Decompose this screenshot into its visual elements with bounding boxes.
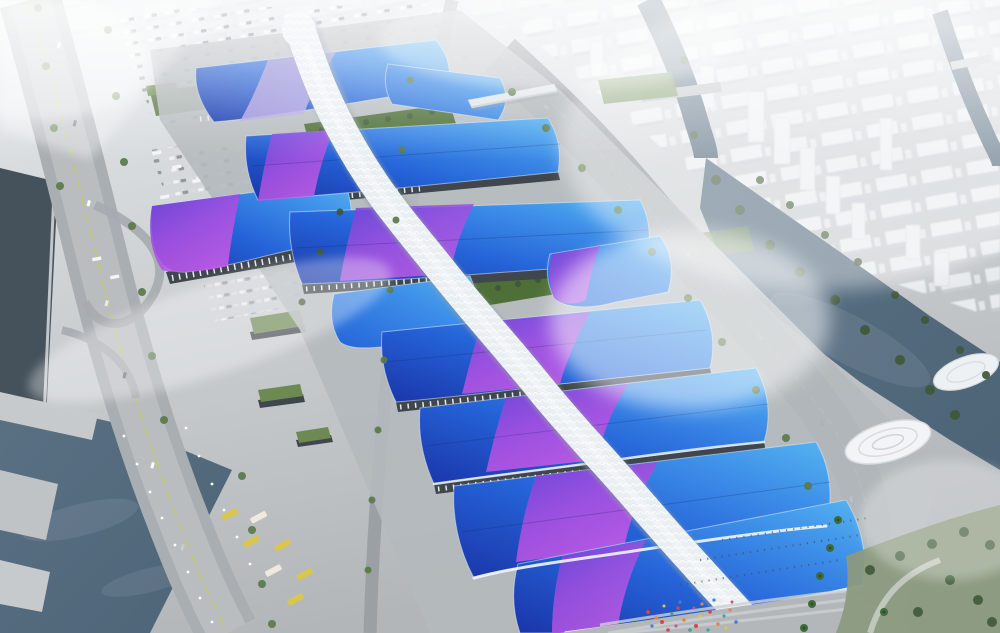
aerial-rendering bbox=[0, 0, 1000, 633]
ribbon-band bbox=[150, 194, 240, 272]
rendering-canvas bbox=[0, 0, 1000, 633]
